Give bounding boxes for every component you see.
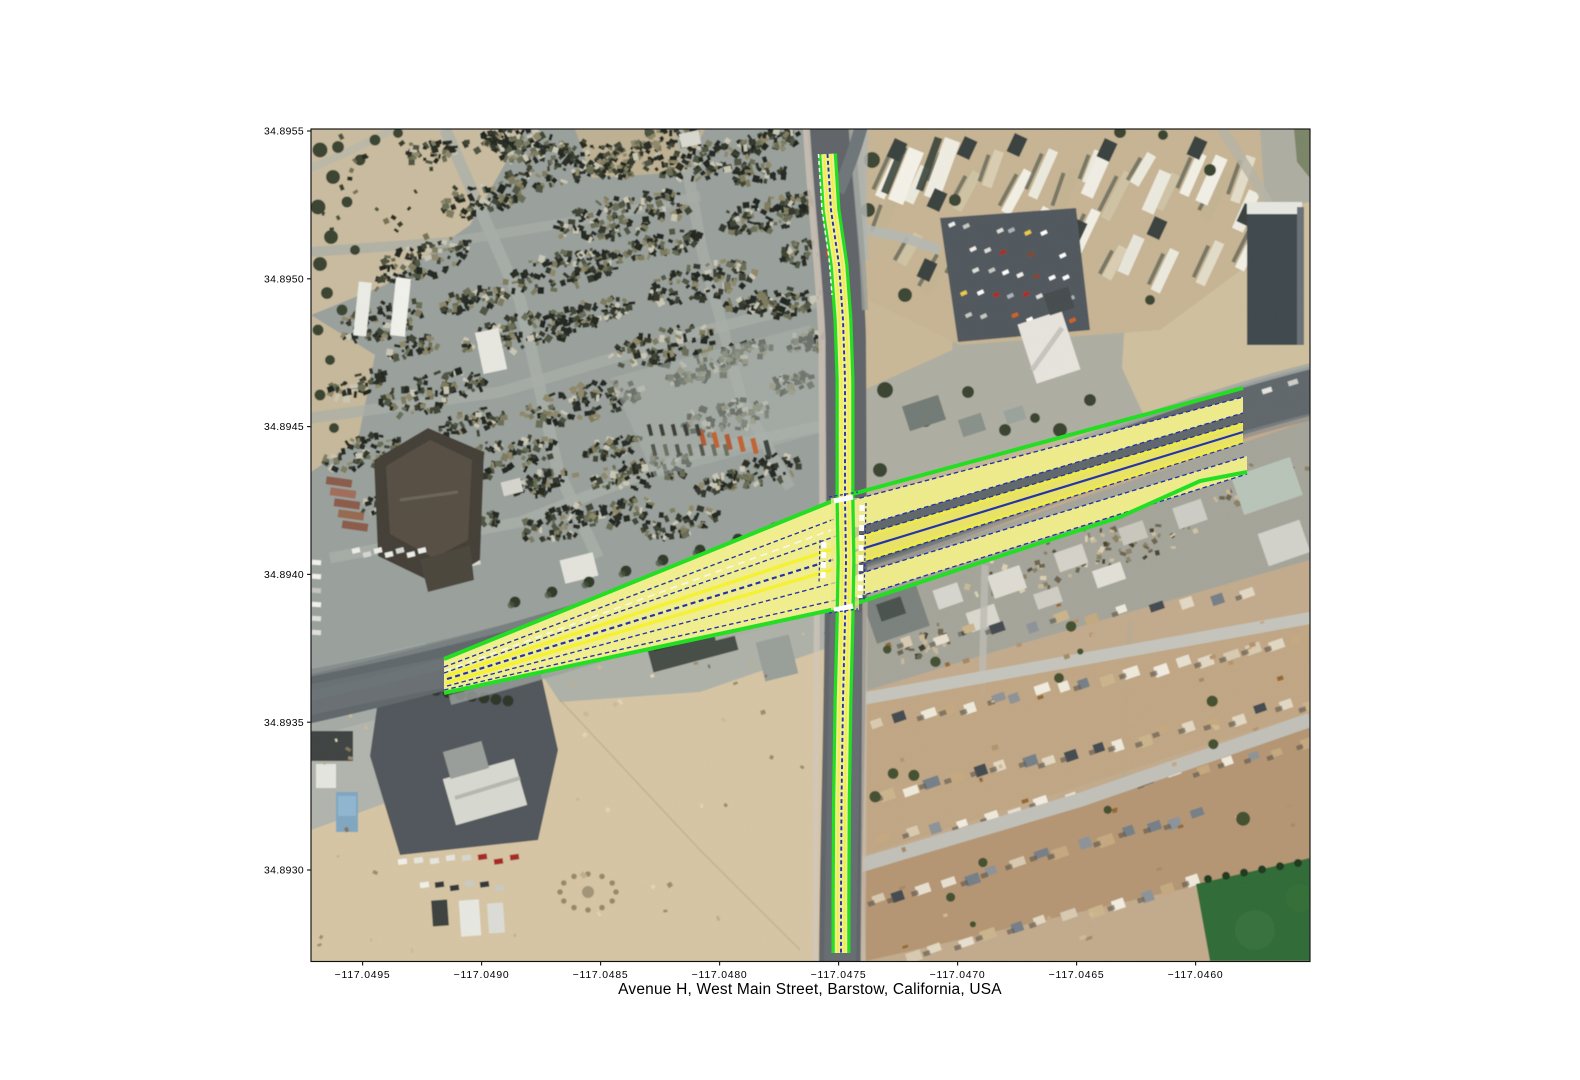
svg-text:Avenue H, West Main Street, Ba: Avenue H, West Main Street, Barstow, Cal… (618, 981, 1002, 998)
svg-text:34.8935: 34.8935 (264, 718, 304, 729)
svg-text:34.8950: 34.8950 (264, 274, 304, 285)
svg-text:−117.0470: −117.0470 (930, 970, 986, 981)
svg-text:−117.0475: −117.0475 (811, 970, 867, 981)
svg-text:34.8945: 34.8945 (264, 422, 304, 433)
svg-text:34.8940: 34.8940 (264, 570, 304, 581)
svg-text:−117.0480: −117.0480 (692, 970, 748, 981)
svg-text:−117.0490: −117.0490 (454, 970, 510, 981)
svg-text:−117.0460: −117.0460 (1168, 970, 1224, 981)
svg-text:−117.0465: −117.0465 (1049, 970, 1105, 981)
svg-text:−117.0485: −117.0485 (573, 970, 629, 981)
svg-text:34.8955: 34.8955 (264, 127, 304, 138)
svg-text:−117.0495: −117.0495 (335, 970, 391, 981)
svg-text:34.8930: 34.8930 (264, 866, 304, 877)
